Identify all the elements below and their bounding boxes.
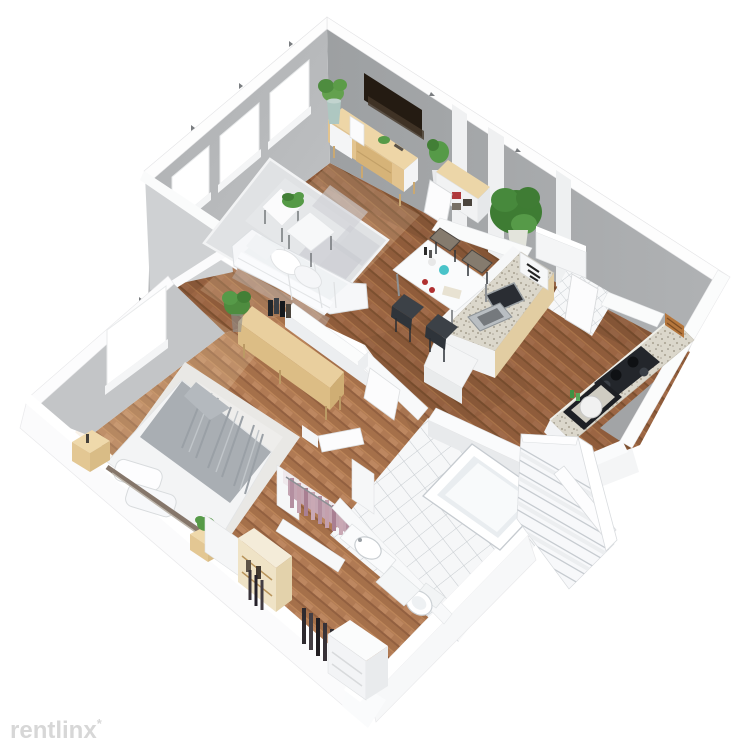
svg-text:rentlinx*: rentlinx* (10, 716, 103, 744)
